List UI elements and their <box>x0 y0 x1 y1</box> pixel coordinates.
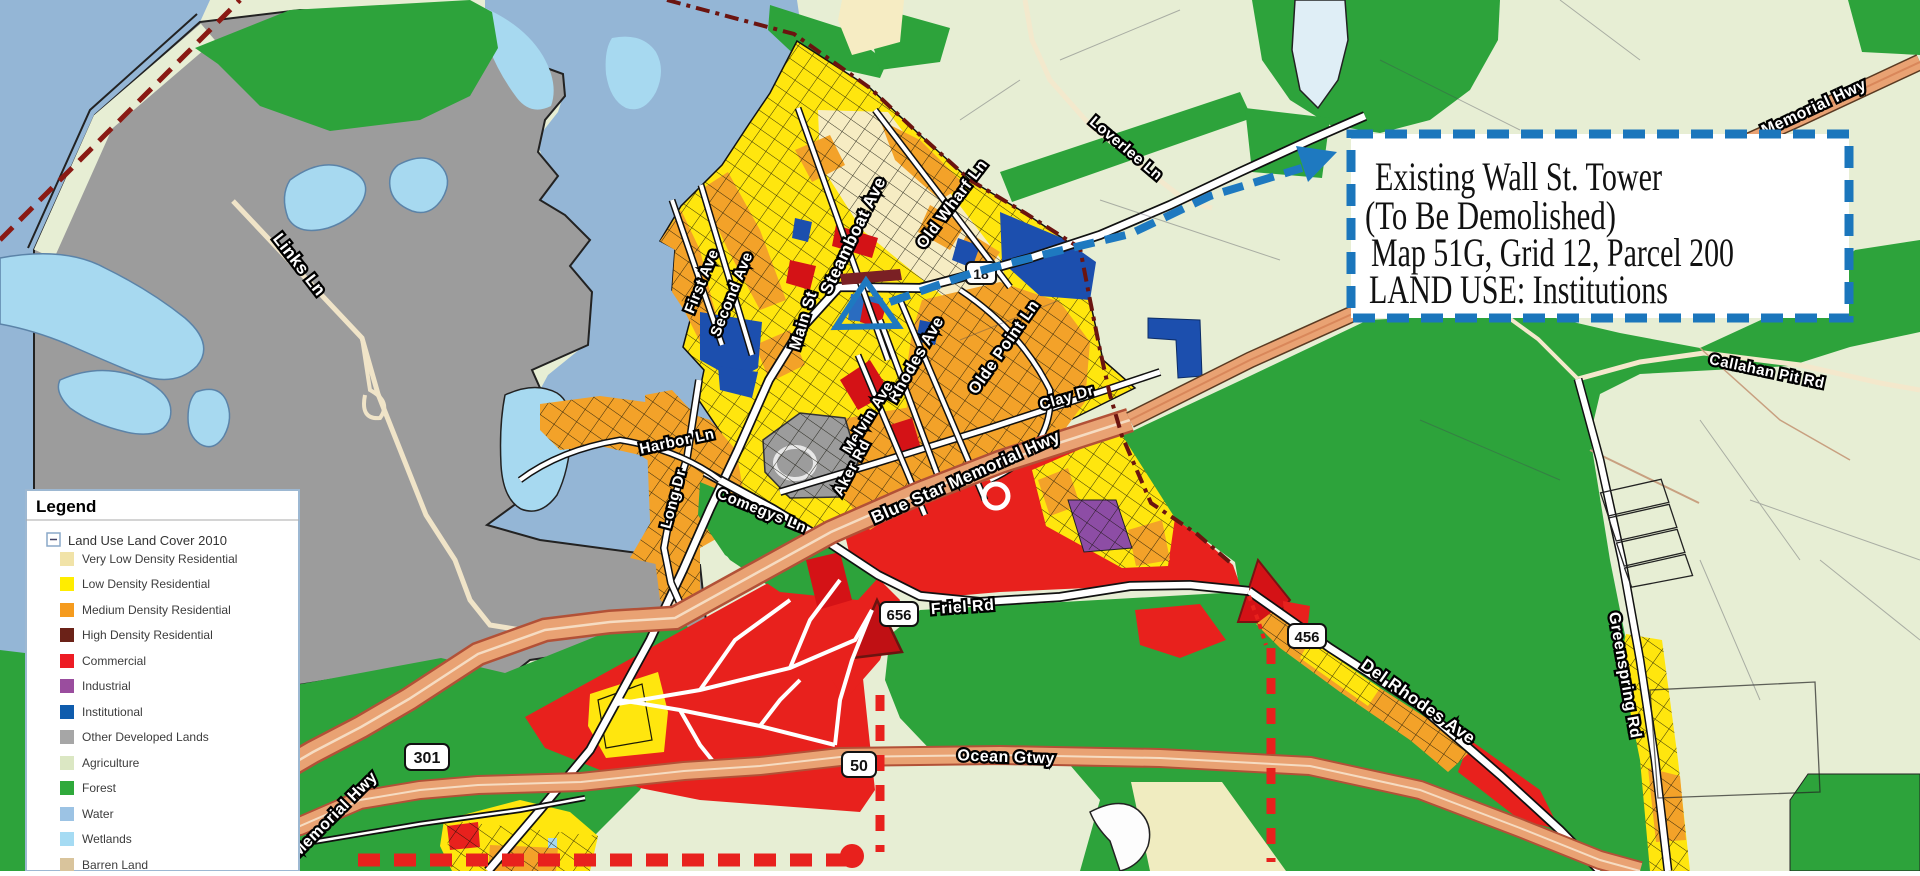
svg-text:456: 456 <box>1294 629 1319 646</box>
svg-text:Institutional: Institutional <box>82 705 143 719</box>
svg-text:LAND USE: Institutions: LAND USE: Institutions <box>1369 267 1668 312</box>
svg-text:Water: Water <box>82 807 114 821</box>
svg-text:Legend: Legend <box>36 497 96 516</box>
svg-text:Barren Land: Barren Land <box>82 858 148 871</box>
svg-text:Very Low Density Residential: Very Low Density Residential <box>82 552 237 566</box>
svg-text:Wetlands: Wetlands <box>82 832 132 846</box>
svg-text:Agriculture: Agriculture <box>82 756 140 770</box>
svg-text:Low Density Residential: Low Density Residential <box>82 577 210 591</box>
svg-text:Ocean Gtwy: Ocean Gtwy <box>957 747 1055 767</box>
svg-text:Industrial: Industrial <box>82 679 131 693</box>
svg-text:High Density Residential: High Density Residential <box>82 628 213 642</box>
svg-text:Other Developed Lands: Other Developed Lands <box>82 730 209 744</box>
svg-text:Medium Density Residential: Medium Density Residential <box>82 603 231 617</box>
svg-text:Commercial: Commercial <box>82 654 146 668</box>
svg-text:Land Use Land Cover 2010: Land Use Land Cover 2010 <box>68 533 227 548</box>
svg-text:656: 656 <box>886 607 911 624</box>
svg-text:50: 50 <box>850 758 868 775</box>
svg-text:Forest: Forest <box>82 781 117 795</box>
svg-text:301: 301 <box>414 750 441 767</box>
